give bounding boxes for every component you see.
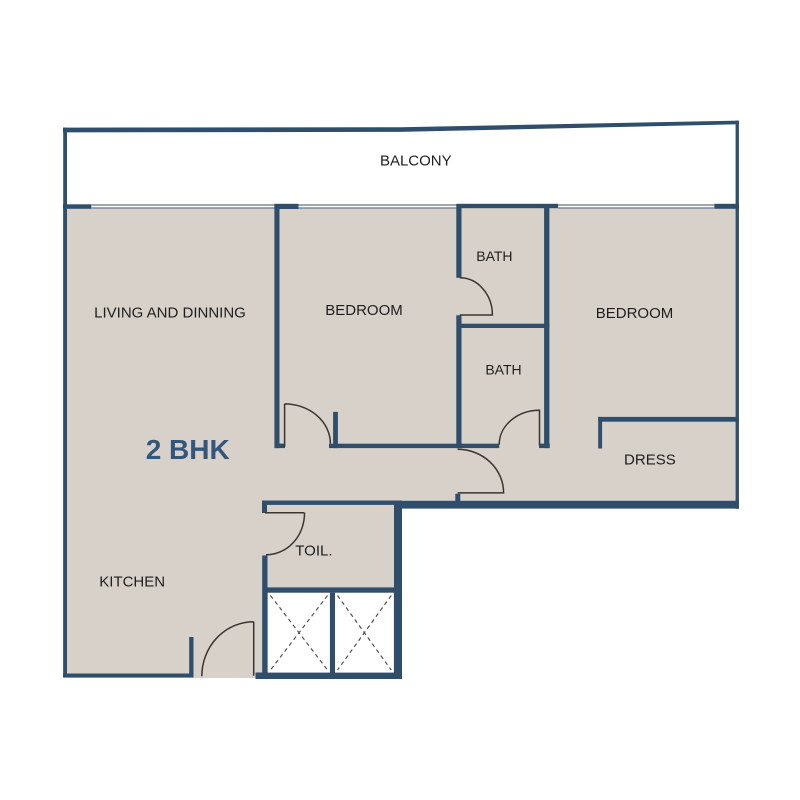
svg-text:BEDROOM: BEDROOM xyxy=(596,305,674,322)
svg-text:TOIL.: TOIL. xyxy=(295,543,332,560)
svg-text:BALCONY: BALCONY xyxy=(380,152,452,169)
svg-text:LIVING AND DINNING: LIVING AND DINNING xyxy=(94,304,246,321)
svg-text:BATH: BATH xyxy=(485,362,521,378)
svg-text:BEDROOM: BEDROOM xyxy=(325,302,403,319)
svg-text:BATH: BATH xyxy=(476,248,512,264)
svg-text:2 BHK: 2 BHK xyxy=(146,434,230,465)
svg-text:DRESS: DRESS xyxy=(624,452,676,469)
svg-text:KITCHEN: KITCHEN xyxy=(99,574,165,591)
